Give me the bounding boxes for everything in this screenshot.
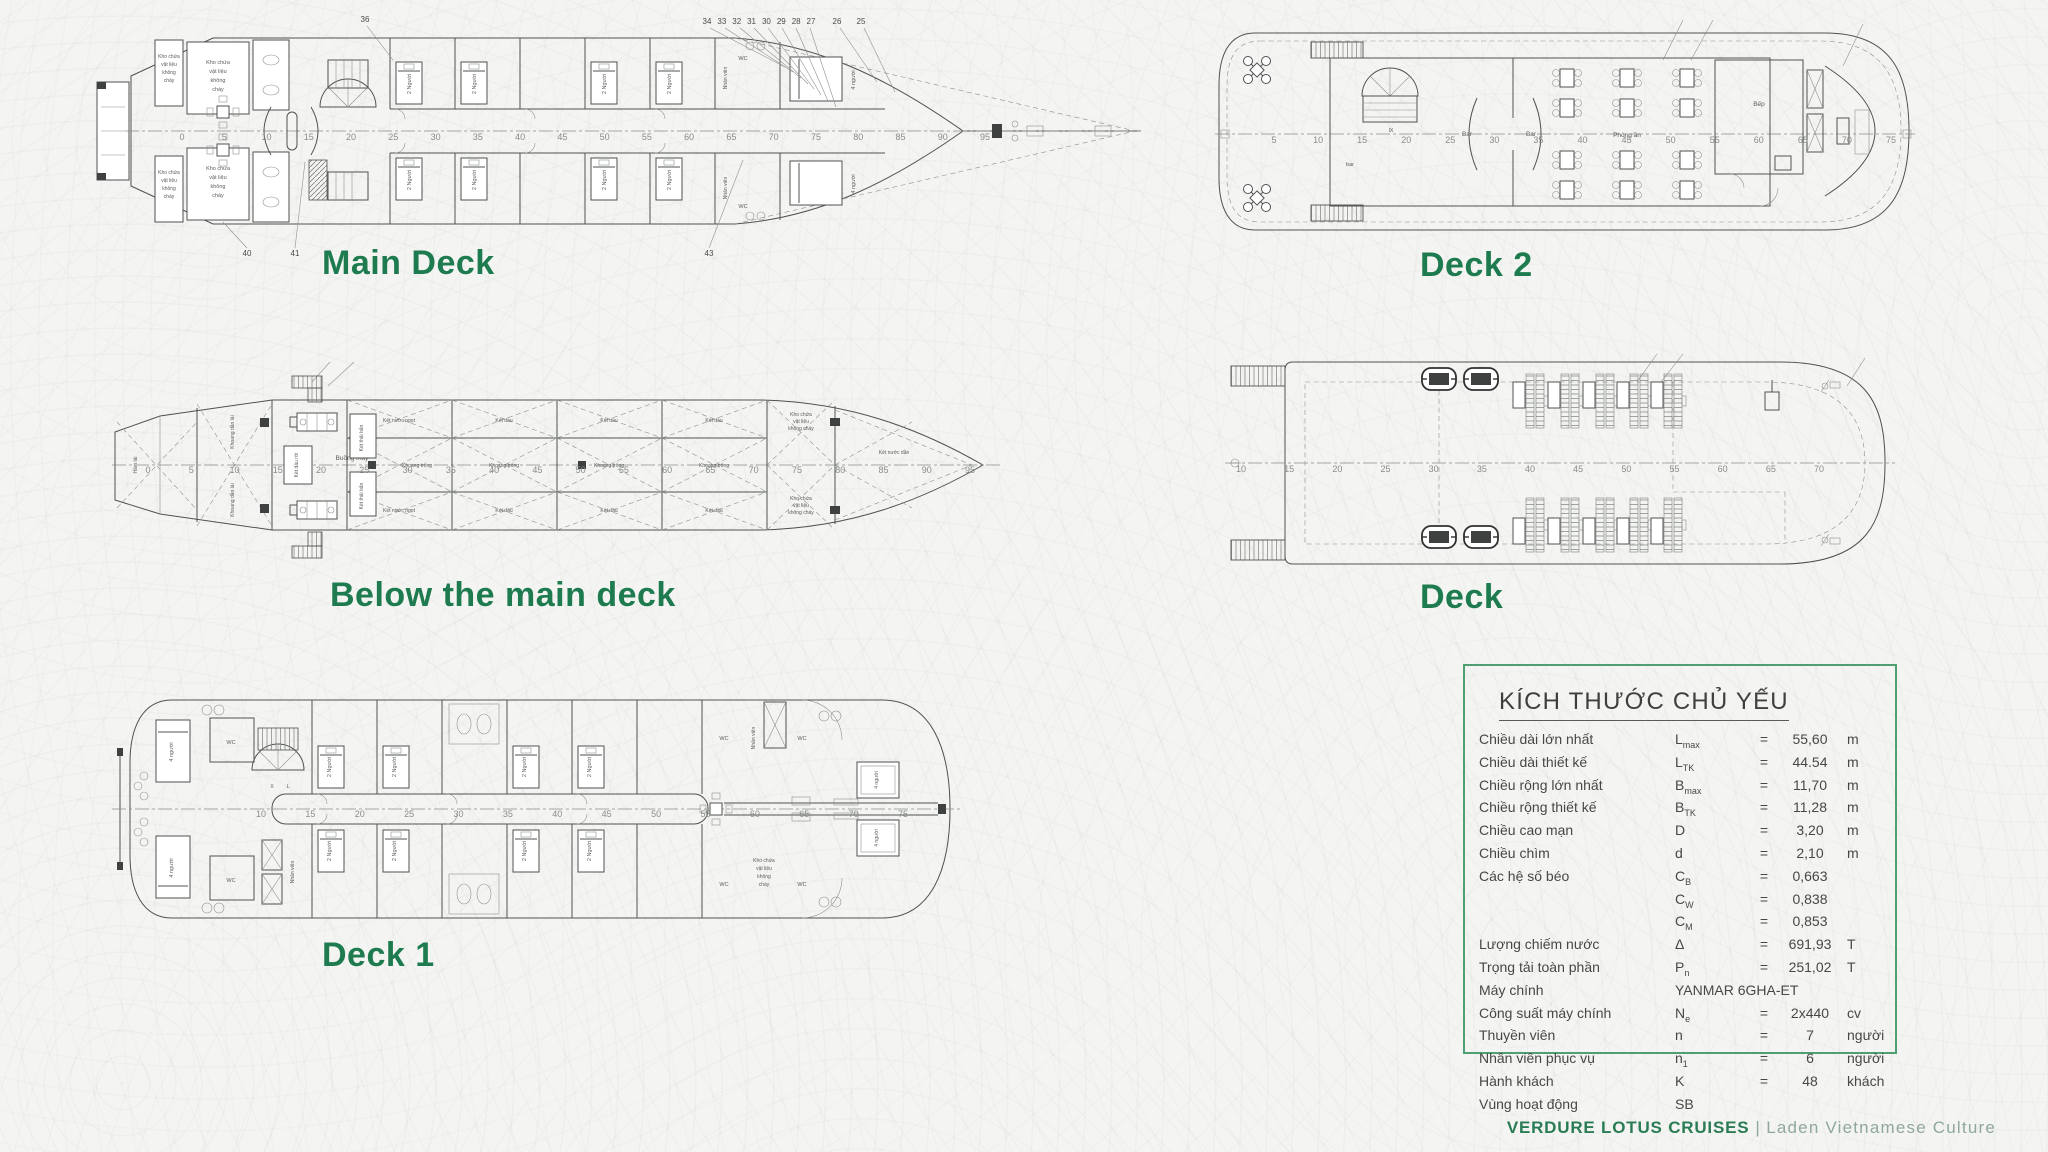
svg-text:25: 25 — [1380, 464, 1390, 474]
spec-row-symbol: d — [1675, 845, 1755, 868]
spec-row-value: 0,663 — [1773, 868, 1847, 891]
footer: VERDURE LOTUS CRUISES|Laden Vietnamese C… — [1507, 1118, 1996, 1138]
spec-row-value: 48 — [1773, 1073, 1847, 1096]
spec-row-unit: T — [1847, 936, 1895, 959]
spec-row: Vùng hoạt động SB — [1479, 1096, 1895, 1119]
spec-row-unit: m — [1847, 845, 1895, 868]
spec-row-equals: = — [1755, 1027, 1773, 1050]
svg-text:15: 15 — [1357, 135, 1367, 145]
deck1-hull — [112, 700, 960, 918]
spec-row-symbol: SB — [1675, 1096, 1755, 1119]
main-deck-stations: 05101520253035404550556065707580859095 — [179, 132, 990, 142]
spec-row: Chiều dài thiết kế LTK = 44.54 m — [1479, 754, 1895, 777]
spec-row: CM = 0,853 — [1479, 913, 1895, 936]
deck-2-plan-drawing: IX bar Bar Bar Phòng ăn Bếp 510152025303… — [1215, 18, 1915, 253]
svg-text:15: 15 — [305, 809, 315, 819]
spec-row-value: 55,60 — [1773, 731, 1847, 754]
spec-row-unit: m — [1847, 731, 1895, 754]
svg-text:60: 60 — [1754, 135, 1764, 145]
svg-text:10: 10 — [1313, 135, 1323, 145]
svg-text:55: 55 — [700, 809, 710, 819]
spec-row-unit: khách — [1847, 1073, 1895, 1096]
spec-row-symbol: BTK — [1675, 799, 1755, 822]
svg-text:70: 70 — [749, 465, 759, 475]
svg-text:Kho chứa: Kho chứa — [206, 60, 231, 66]
spec-row-symbol: CW — [1675, 891, 1755, 914]
svg-text:không: không — [162, 186, 176, 192]
svg-text:85: 85 — [878, 465, 888, 475]
spec-row-label: Công suất máy chính — [1479, 1005, 1675, 1028]
svg-text:80: 80 — [853, 132, 863, 142]
svg-text:4 người: 4 người — [874, 771, 880, 788]
svg-text:không cháy: không cháy — [788, 426, 814, 432]
spec-row-symbol: K — [1675, 1073, 1755, 1096]
spec-row: Chiều chìm d = 2,10 m — [1479, 845, 1895, 868]
svg-text:cháy: cháy — [164, 78, 175, 84]
svg-text:vật liệu: vật liệu — [756, 866, 772, 872]
spec-row-equals: = — [1755, 845, 1773, 868]
deck2-stations: 51015202530354045505560657075 — [1271, 135, 1896, 145]
spec-row-symbol: CM — [1675, 913, 1755, 936]
below-hull — [112, 362, 1000, 530]
svg-text:cháy: cháy — [759, 882, 770, 888]
spec-row-value: 11,28 — [1773, 799, 1847, 822]
svg-text:75: 75 — [811, 132, 821, 142]
footer-brand: VERDURE LOTUS CRUISES — [1507, 1118, 1750, 1137]
svg-text:không: không — [211, 78, 226, 84]
spec-row: Chiều rộng lớn nhất Bmax = 11,70 m — [1479, 777, 1895, 800]
svg-text:45: 45 — [1622, 135, 1632, 145]
spec-row: CW = 0,838 — [1479, 891, 1895, 914]
spec-row-value: 11,70 — [1773, 777, 1847, 800]
svg-text:30: 30 — [403, 465, 413, 475]
svg-text:4 người: 4 người — [169, 742, 175, 761]
svg-text:90: 90 — [938, 132, 948, 142]
svg-text:Bar: Bar — [1462, 131, 1473, 138]
svg-text:Khoang dằn lái: Khoang dằn lái — [229, 415, 236, 448]
svg-text:70: 70 — [1842, 135, 1852, 145]
spec-row-label: Chiều chìm — [1479, 845, 1675, 868]
svg-text:32: 32 — [732, 17, 741, 26]
svg-text:Két dầu: Két dầu — [495, 508, 512, 514]
spec-row-label: Chiều dài lớn nhất — [1479, 731, 1675, 754]
spec-row-equals: = — [1755, 1050, 1773, 1073]
spec-row: Lượng chiếm nước Δ = 691,93 T — [1479, 936, 1895, 959]
svg-text:30: 30 — [1489, 135, 1499, 145]
spec-table: KÍCH THƯỚC CHỦ YẾU Chiều dài lớn nhất Lm… — [1463, 664, 1897, 1054]
spec-row-unit — [1847, 982, 1895, 1005]
spec-row-equals: = — [1755, 754, 1773, 777]
svg-text:35: 35 — [1533, 135, 1543, 145]
spec-row-label: Thuyền viên — [1479, 1027, 1675, 1050]
svg-text:70: 70 — [769, 132, 779, 142]
spec-row-unit: cv — [1847, 1005, 1895, 1028]
spec-row-equals: = — [1755, 777, 1773, 800]
spec-row: Công suất máy chính Ne = 2x440 cv — [1479, 1005, 1895, 1028]
spec-row-label: Các hệ số béo — [1479, 868, 1675, 891]
svg-text:vật liệu: vật liệu — [209, 69, 226, 75]
svg-text:34: 34 — [703, 17, 712, 26]
sundeck-life-rafts — [1422, 368, 1498, 548]
deck2-bar-room: IX bar Bar Bar — [1330, 58, 1770, 206]
svg-text:WC: WC — [797, 736, 806, 742]
svg-text:95: 95 — [965, 465, 975, 475]
spec-table-title: KÍCH THƯỚC CHỦ YẾU — [1499, 688, 1789, 721]
spec-row-symbol: YANMAR 6GHA-ET — [1675, 982, 1755, 1005]
svg-text:45: 45 — [532, 465, 542, 475]
svg-text:30: 30 — [454, 809, 464, 819]
spec-row-symbol: n — [1675, 1027, 1755, 1050]
svg-text:50: 50 — [1666, 135, 1676, 145]
svg-text:vật liệu: vật liệu — [209, 175, 226, 181]
deck2-hull — [1215, 33, 1915, 230]
svg-text:WC: WC — [738, 56, 747, 62]
svg-text:60: 60 — [684, 132, 694, 142]
sun-deck-plan-drawing: 10152025303540455055606570 — [1225, 352, 1897, 577]
svg-text:vật liệu: vật liệu — [161, 62, 177, 68]
spec-row-label: Nhân viên phục vụ — [1479, 1050, 1675, 1073]
spec-row-value — [1773, 1096, 1847, 1119]
svg-text:36: 36 — [361, 15, 370, 24]
svg-text:Két dầu: Két dầu — [600, 418, 617, 424]
svg-text:90: 90 — [922, 465, 932, 475]
svg-text:Kho chứa: Kho chứa — [790, 496, 812, 502]
svg-text:bar: bar — [1346, 162, 1354, 168]
svg-text:Kho chứa: Kho chứa — [753, 858, 775, 864]
svg-text:30: 30 — [1429, 464, 1439, 474]
svg-text:WC: WC — [719, 736, 728, 742]
spec-row-equals: = — [1755, 1005, 1773, 1028]
svg-text:Kho chứa: Kho chứa — [158, 54, 180, 60]
svg-text:10: 10 — [230, 465, 240, 475]
svg-text:80: 80 — [835, 465, 845, 475]
spec-row-symbol: Ne — [1675, 1005, 1755, 1028]
svg-text:35: 35 — [503, 809, 513, 819]
svg-text:Hầm lái: Hầm lái — [133, 457, 139, 474]
svg-text:55: 55 — [1669, 464, 1679, 474]
spec-row-equals: = — [1755, 731, 1773, 754]
spec-row-symbol: CB — [1675, 868, 1755, 891]
svg-text:Két thải bẩn: Két thải bẩn — [358, 482, 365, 509]
spec-row: Hành khách K = 48 khách — [1479, 1073, 1895, 1096]
spec-row-value: 691,93 — [1773, 936, 1847, 959]
svg-text:Nhân viên: Nhân viên — [723, 177, 729, 200]
spec-row-label: Chiều rộng thiết kế — [1479, 799, 1675, 822]
svg-text:2 Người: 2 Người — [392, 841, 398, 861]
svg-text:2 Người: 2 Người — [407, 170, 413, 190]
svg-text:20: 20 — [1332, 464, 1342, 474]
spec-row-symbol: n1 — [1675, 1050, 1755, 1073]
footer-divider: | — [1755, 1118, 1760, 1137]
spec-row-value: 44.54 — [1773, 754, 1847, 777]
svg-text:25: 25 — [388, 132, 398, 142]
spec-row-unit: m — [1847, 822, 1895, 845]
spec-row-symbol: Δ — [1675, 936, 1755, 959]
svg-text:41: 41 — [291, 249, 300, 258]
below-main-deck-plan-drawing: Hầm lái Khoang dằn lái Khoang dằn lái Bu… — [112, 360, 1002, 575]
svg-text:WC: WC — [738, 204, 747, 210]
svg-text:40: 40 — [243, 249, 252, 258]
spec-row-symbol: Bmax — [1675, 777, 1755, 800]
svg-text:40: 40 — [515, 132, 525, 142]
svg-text:2 Người: 2 Người — [667, 170, 673, 190]
svg-text:25: 25 — [1445, 135, 1455, 145]
svg-text:50: 50 — [1621, 464, 1631, 474]
spec-row-label — [1479, 891, 1675, 914]
svg-text:43: 43 — [705, 249, 714, 258]
sundeck-stations: 10152025303540455055606570 — [1236, 464, 1824, 474]
svg-text:2 Người: 2 Người — [602, 170, 608, 190]
svg-text:Két nước dằn: Két nước dằn — [879, 449, 910, 456]
spec-row-unit: T — [1847, 959, 1895, 982]
spec-row-unit: m — [1847, 799, 1895, 822]
spec-row-unit — [1847, 1096, 1895, 1119]
svg-text:50: 50 — [576, 465, 586, 475]
svg-text:Nhân viên: Nhân viên — [290, 861, 296, 884]
spec-row-equals: = — [1755, 936, 1773, 959]
svg-text:không: không — [211, 184, 226, 190]
svg-text:65: 65 — [726, 132, 736, 142]
spec-row-equals: = — [1755, 891, 1773, 914]
svg-text:55: 55 — [1710, 135, 1720, 145]
spec-row-equals — [1755, 982, 1773, 1005]
svg-text:75: 75 — [898, 809, 908, 819]
spec-row: Chiều cao mạn D = 3,20 m — [1479, 822, 1895, 845]
svg-text:65: 65 — [1766, 464, 1776, 474]
spec-row-unit: m — [1847, 754, 1895, 777]
svg-text:2 Người: 2 Người — [327, 757, 333, 777]
svg-text:65: 65 — [705, 465, 715, 475]
svg-text:75: 75 — [792, 465, 802, 475]
svg-text:28: 28 — [792, 17, 801, 26]
spec-row-unit — [1847, 891, 1895, 914]
spec-row-equals: = — [1755, 822, 1773, 845]
svg-text:Kho chứa: Kho chứa — [790, 412, 812, 418]
svg-text:60: 60 — [1718, 464, 1728, 474]
spec-row: Trọng tải toàn phần Pn = 251,02 T — [1479, 959, 1895, 982]
svg-text:WC: WC — [797, 882, 806, 888]
spec-row-value: 7 — [1773, 1027, 1847, 1050]
svg-text:WC: WC — [226, 878, 235, 884]
svg-text:45: 45 — [1573, 464, 1583, 474]
svg-text:vật liệu: vật liệu — [793, 503, 809, 509]
svg-text:2 Người: 2 Người — [472, 170, 478, 190]
svg-text:27: 27 — [807, 17, 816, 26]
svg-text:4 người: 4 người — [874, 829, 880, 846]
svg-text:40: 40 — [1525, 464, 1535, 474]
svg-text:2 Người: 2 Người — [667, 74, 673, 94]
svg-text:2 Người: 2 Người — [587, 757, 593, 777]
footer-tagline: Laden Vietnamese Culture — [1766, 1118, 1996, 1137]
svg-text:X: X — [270, 784, 274, 790]
spec-row-value: 0,853 — [1773, 913, 1847, 936]
spec-row-label: Lượng chiếm nước — [1479, 936, 1675, 959]
spec-row-label: Máy chính — [1479, 982, 1675, 1005]
spec-row-label: Vùng hoạt động — [1479, 1096, 1675, 1119]
spec-row-equals — [1755, 1096, 1773, 1119]
svg-text:15: 15 — [273, 465, 283, 475]
svg-text:Két dầu: Két dầu — [705, 418, 722, 424]
svg-text:30: 30 — [431, 132, 441, 142]
spec-row-equals: = — [1755, 959, 1773, 982]
svg-text:40: 40 — [1577, 135, 1587, 145]
svg-text:20: 20 — [1401, 135, 1411, 145]
svg-text:5: 5 — [1271, 135, 1276, 145]
svg-text:Kho chứa: Kho chứa — [206, 166, 231, 172]
spec-row-equals: = — [1755, 913, 1773, 936]
svg-text:2 Người: 2 Người — [472, 74, 478, 94]
spec-row-unit: người — [1847, 1027, 1895, 1050]
svg-text:cháy: cháy — [212, 193, 224, 199]
svg-text:4 người: 4 người — [851, 174, 857, 193]
svg-text:WC: WC — [226, 740, 235, 746]
svg-text:75: 75 — [1886, 135, 1896, 145]
svg-text:2 Người: 2 Người — [407, 74, 413, 94]
svg-text:45: 45 — [602, 809, 612, 819]
svg-text:Két dầu rời: Két dầu rời — [294, 453, 300, 478]
spec-row-value: 251,02 — [1773, 959, 1847, 982]
svg-text:35: 35 — [1477, 464, 1487, 474]
spec-row: Chiều dài lớn nhất Lmax = 55,60 m — [1479, 731, 1895, 754]
svg-text:60: 60 — [750, 809, 760, 819]
spec-row-symbol: D — [1675, 822, 1755, 845]
svg-text:40: 40 — [552, 809, 562, 819]
svg-text:Bếp: Bếp — [1753, 99, 1765, 108]
main-deck-plan-drawing: Kho chứa vật liệu không cháy Kho chứa vậ… — [95, 12, 1150, 264]
main-deck-title: Main Deck — [322, 244, 495, 283]
spec-row-unit: m — [1847, 777, 1895, 800]
deck-1-title: Deck 1 — [322, 936, 435, 975]
svg-text:Nhân viên: Nhân viên — [723, 67, 729, 90]
svg-text:không: không — [757, 874, 771, 880]
svg-text:cháy: cháy — [164, 194, 175, 200]
svg-text:cháy: cháy — [212, 87, 224, 93]
svg-text:30: 30 — [762, 17, 771, 26]
svg-text:L: L — [287, 784, 290, 790]
svg-text:Khoang dằn lái: Khoang dằn lái — [229, 483, 236, 516]
svg-text:vật liệu: vật liệu — [161, 178, 177, 184]
spec-row-symbol: Pn — [1675, 959, 1755, 982]
spec-row-equals: = — [1755, 868, 1773, 891]
svg-text:2 Người: 2 Người — [602, 74, 608, 94]
svg-text:không: không — [162, 70, 176, 76]
spec-row-label: Chiều rộng lớn nhất — [1479, 777, 1675, 800]
svg-text:95: 95 — [980, 132, 990, 142]
svg-text:26: 26 — [833, 17, 842, 26]
svg-text:33: 33 — [717, 17, 726, 26]
spec-row: Chiều rộng thiết kế BTK = 11,28 m — [1479, 799, 1895, 822]
svg-text:85: 85 — [895, 132, 905, 142]
deck1-left-cabins: 4 người 4 người WC WC X L Nhân viên — [156, 718, 304, 904]
deck-plan-poster: { "page": { "background": "#f4f5f2", "li… — [0, 0, 2048, 1152]
svg-text:Két thải bẩn: Két thải bẩn — [358, 424, 365, 451]
svg-text:35: 35 — [446, 465, 456, 475]
svg-text:0: 0 — [145, 465, 150, 475]
svg-text:4 người: 4 người — [169, 858, 175, 877]
svg-text:31: 31 — [747, 17, 756, 26]
svg-text:Két nước ngọt: Két nước ngọt — [383, 508, 416, 514]
svg-text:2 Người: 2 Người — [327, 841, 333, 861]
deck2-stern-gear — [1244, 42, 1364, 221]
svg-text:40: 40 — [489, 465, 499, 475]
svg-text:Két nước ngọt: Két nước ngọt — [383, 418, 416, 424]
deck2-bow-lounge — [1663, 20, 1875, 196]
spec-row-value — [1773, 982, 1847, 1005]
svg-text:65: 65 — [1798, 135, 1808, 145]
spec-row-value: 3,20 — [1773, 822, 1847, 845]
svg-text:2 Người: 2 Người — [522, 841, 528, 861]
svg-text:50: 50 — [600, 132, 610, 142]
svg-text:2 Người: 2 Người — [392, 757, 398, 777]
svg-text:vật liệu: vật liệu — [793, 419, 809, 425]
spec-row-unit — [1847, 913, 1895, 936]
spec-row-label: Chiều cao mạn — [1479, 822, 1675, 845]
svg-text:5: 5 — [189, 465, 194, 475]
svg-text:10: 10 — [1236, 464, 1246, 474]
svg-text:5: 5 — [222, 132, 227, 142]
svg-text:65: 65 — [799, 809, 809, 819]
svg-text:60: 60 — [662, 465, 672, 475]
svg-text:45: 45 — [557, 132, 567, 142]
spec-row: Thuyền viên n = 7 người — [1479, 1027, 1895, 1050]
spec-row-value: 0,838 — [1773, 891, 1847, 914]
svg-text:Két dầu: Két dầu — [705, 508, 722, 514]
svg-text:Nhân viên: Nhân viên — [751, 727, 757, 750]
svg-text:WC: WC — [719, 882, 728, 888]
spec-row-value: 2,10 — [1773, 845, 1847, 868]
svg-text:55: 55 — [642, 132, 652, 142]
svg-text:Kho chứa: Kho chứa — [158, 170, 180, 176]
svg-text:không cháy: không cháy — [788, 510, 814, 516]
svg-text:Két dầu: Két dầu — [600, 508, 617, 514]
spec-row-equals: = — [1755, 1073, 1773, 1096]
svg-text:20: 20 — [346, 132, 356, 142]
svg-text:25: 25 — [404, 809, 414, 819]
svg-text:IX: IX — [1389, 128, 1394, 134]
spec-row-unit — [1847, 868, 1895, 891]
svg-text:25: 25 — [857, 17, 866, 26]
spec-row: Nhân viên phục vụ n1 = 6 người — [1479, 1050, 1895, 1073]
svg-text:0: 0 — [179, 132, 184, 142]
svg-text:10: 10 — [256, 809, 266, 819]
svg-text:2 Người: 2 Người — [522, 757, 528, 777]
svg-text:55: 55 — [619, 465, 629, 475]
svg-text:20: 20 — [316, 465, 326, 475]
spec-row-unit: người — [1847, 1050, 1895, 1073]
svg-text:70: 70 — [1814, 464, 1824, 474]
spec-row-label: Trọng tải toàn phần — [1479, 959, 1675, 982]
sun-deck-title: Deck — [1420, 578, 1503, 617]
below-main-deck-title: Below the main deck — [330, 576, 676, 615]
svg-text:29: 29 — [777, 17, 786, 26]
spec-row-value: 6 — [1773, 1050, 1847, 1073]
svg-text:25: 25 — [359, 465, 369, 475]
svg-text:70: 70 — [849, 809, 859, 819]
svg-text:2 Người: 2 Người — [587, 841, 593, 861]
spec-row-label: Chiều dài thiết kế — [1479, 754, 1675, 777]
svg-text:20: 20 — [355, 809, 365, 819]
spec-row-value: 2x440 — [1773, 1005, 1847, 1028]
spec-row-label — [1479, 913, 1675, 936]
svg-text:10: 10 — [262, 132, 272, 142]
spec-row: Các hệ số béo CB = 0,663 — [1479, 868, 1895, 891]
spec-row-symbol: LTK — [1675, 754, 1755, 777]
svg-text:15: 15 — [304, 132, 314, 142]
spec-row-label: Hành khách — [1479, 1073, 1675, 1096]
deck-1-plan-drawing: 4 người 4 người WC WC X L Nhân viên — [112, 690, 962, 935]
spec-row-equals: = — [1755, 799, 1773, 822]
deck2-kitchen: Bếp — [1715, 60, 1823, 206]
